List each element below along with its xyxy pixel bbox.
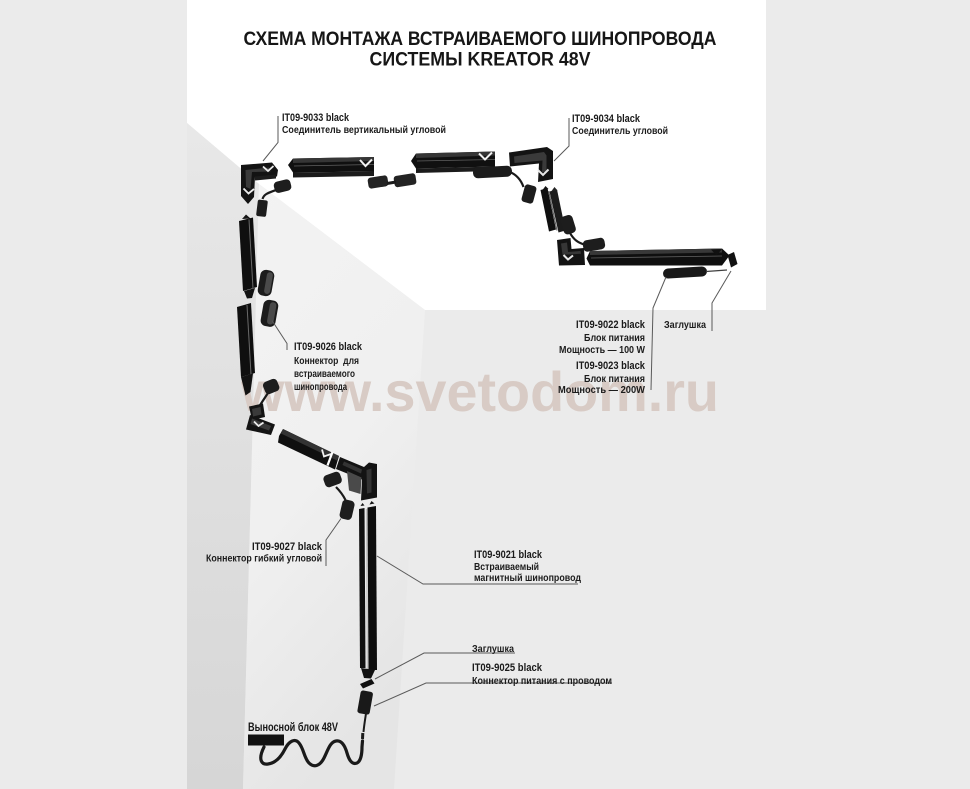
svg-text:Соединитель угловой: Соединитель угловой [572, 125, 668, 137]
svg-text:Мощность — 200W: Мощность — 200W [558, 384, 645, 396]
svg-text:IT09-9026 black: IT09-9026 black [294, 341, 363, 353]
svg-text:IT09-9025 black: IT09-9025 black [472, 662, 543, 674]
svg-text:СХЕМА МОНТАЖА ВСТРАИВАЕМОГО ШИ: СХЕМА МОНТАЖА ВСТРАИВАЕМОГО ШИНОПРОВОДА [244, 28, 717, 50]
svg-text:IT09-9027 black: IT09-9027 black [252, 541, 323, 553]
svg-text:магнитный шинопровод: магнитный шинопровод [474, 572, 581, 584]
svg-text:Блок питания: Блок питания [584, 332, 645, 344]
svg-text:Соединитель вертикальный углов: Соединитель вертикальный угловой [282, 124, 446, 136]
svg-text:IT09-9022 black: IT09-9022 black [576, 319, 646, 331]
svg-text:Коннектор для: Коннектор для [294, 355, 359, 367]
svg-text:Заглушка: Заглушка [664, 319, 706, 331]
svg-text:Коннектор гибкий угловой: Коннектор гибкий угловой [206, 553, 322, 565]
svg-text:Заглушка: Заглушка [472, 643, 514, 655]
svg-text:шинопровода: шинопровода [294, 381, 347, 393]
svg-text:встраиваемого: встраиваемого [294, 368, 355, 380]
svg-text:СИСТЕМЫ KREATOR 48V: СИСТЕМЫ KREATOR 48V [370, 49, 591, 71]
svg-text:Коннектор питания с проводом: Коннектор питания с проводом [472, 675, 612, 687]
svg-text:IT09-9023 black: IT09-9023 black [576, 360, 646, 372]
svg-text:IT09-9033 black: IT09-9033 black [282, 112, 350, 124]
svg-text:IT09-9021 black: IT09-9021 black [474, 549, 543, 561]
svg-text:Мощность — 100 W: Мощность — 100 W [559, 344, 645, 356]
svg-text:IT09-9034 black: IT09-9034 black [572, 113, 641, 125]
svg-text:Выносной блок 48V: Выносной блок 48V [248, 722, 338, 734]
